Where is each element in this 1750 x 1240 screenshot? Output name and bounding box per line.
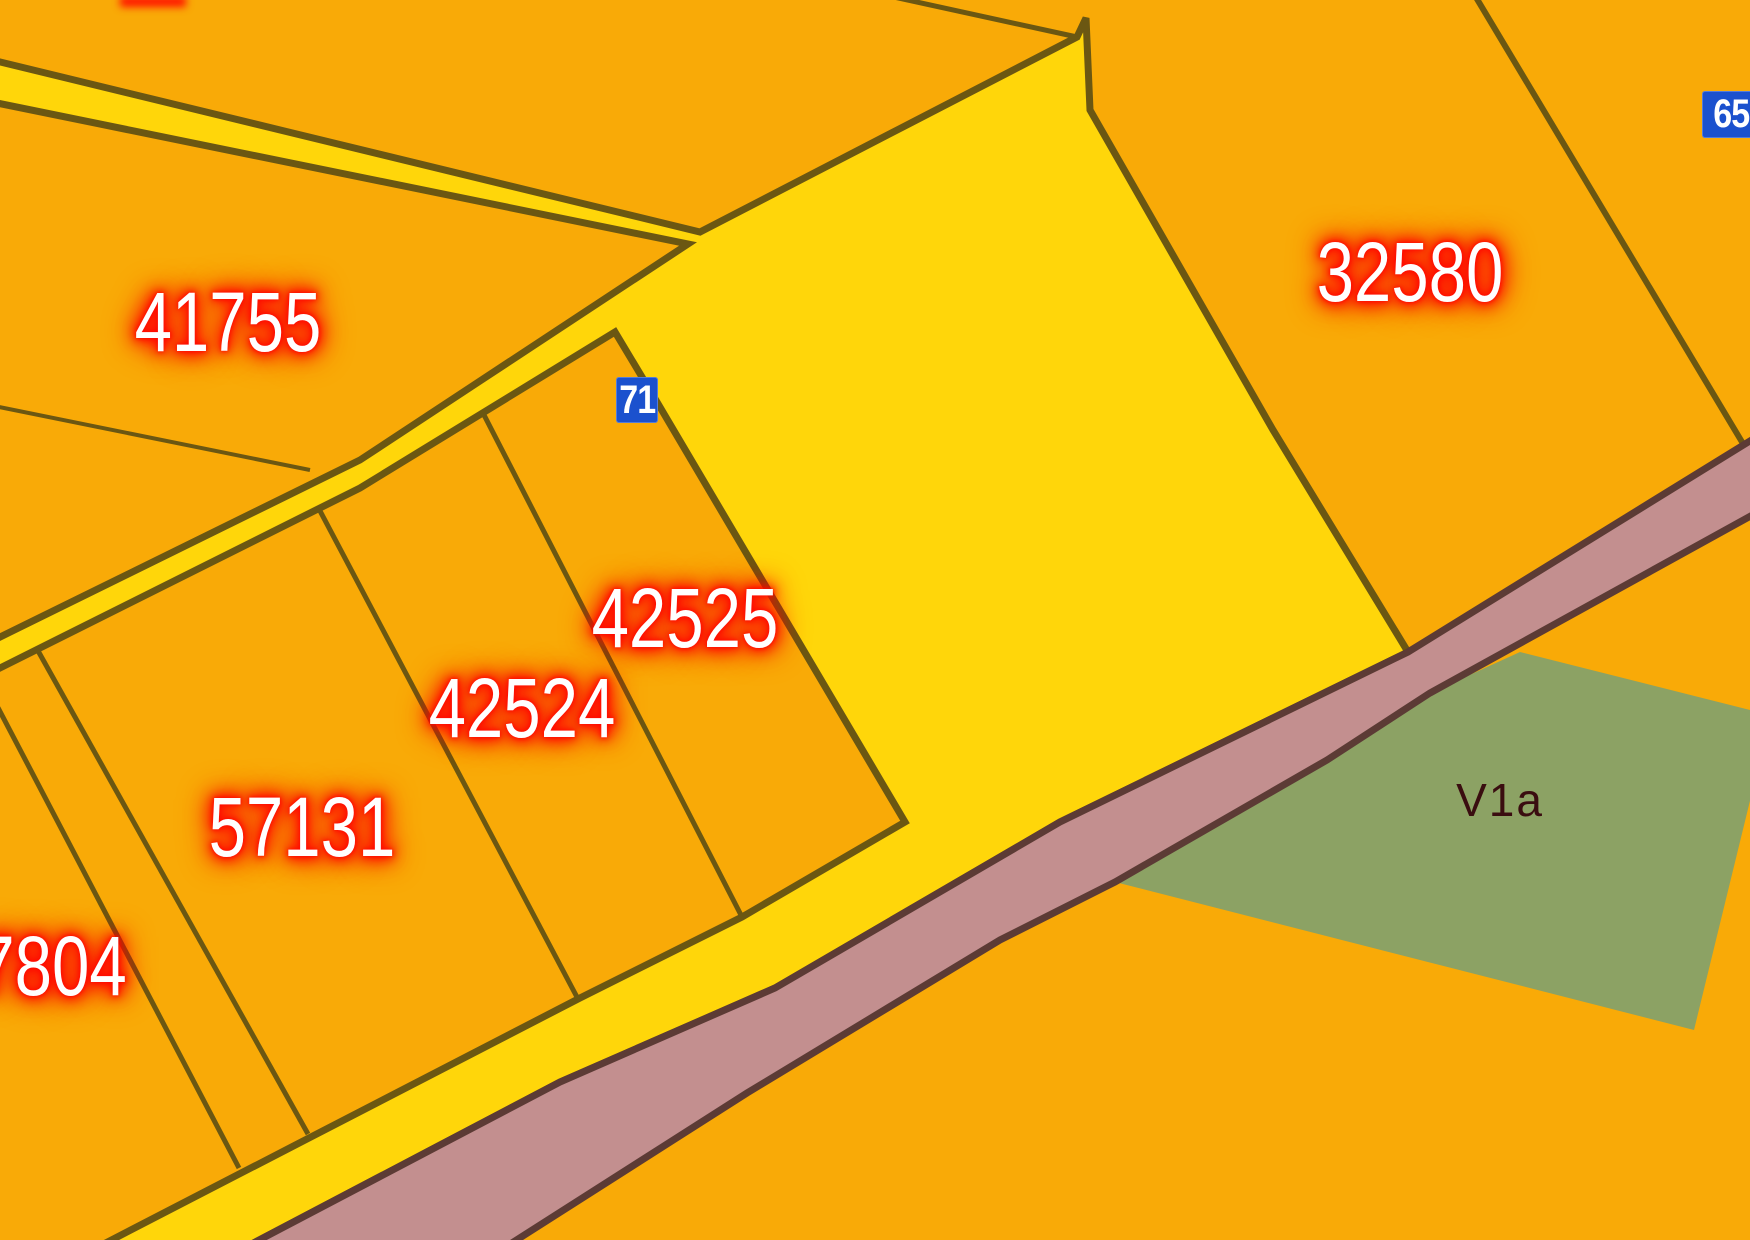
- road-marker-65-number: 65: [1713, 92, 1749, 137]
- parcel-label-57131: 57131: [209, 785, 396, 869]
- parcel-label-42525: 42525: [592, 576, 779, 660]
- road-marker-65: 65: [1702, 91, 1750, 138]
- parcel-label-42524: 42524: [429, 666, 616, 750]
- map-canvas: [0, 0, 1750, 1240]
- parcel-label-41755: 41755: [135, 280, 322, 364]
- zone-label-v1a: V1a: [1456, 773, 1544, 827]
- parcel-label-32580: 32580: [1317, 230, 1504, 314]
- road-marker-71: 71: [616, 377, 658, 423]
- clipped-parcel-label-remnant: [120, 0, 186, 7]
- road-marker-71-number: 71: [619, 378, 655, 423]
- cadastral-map[interactable]: 41755 32580 42525 42524 57131 7804 V1a 7…: [0, 0, 1750, 1240]
- parcel-label-7804: 7804: [0, 924, 127, 1008]
